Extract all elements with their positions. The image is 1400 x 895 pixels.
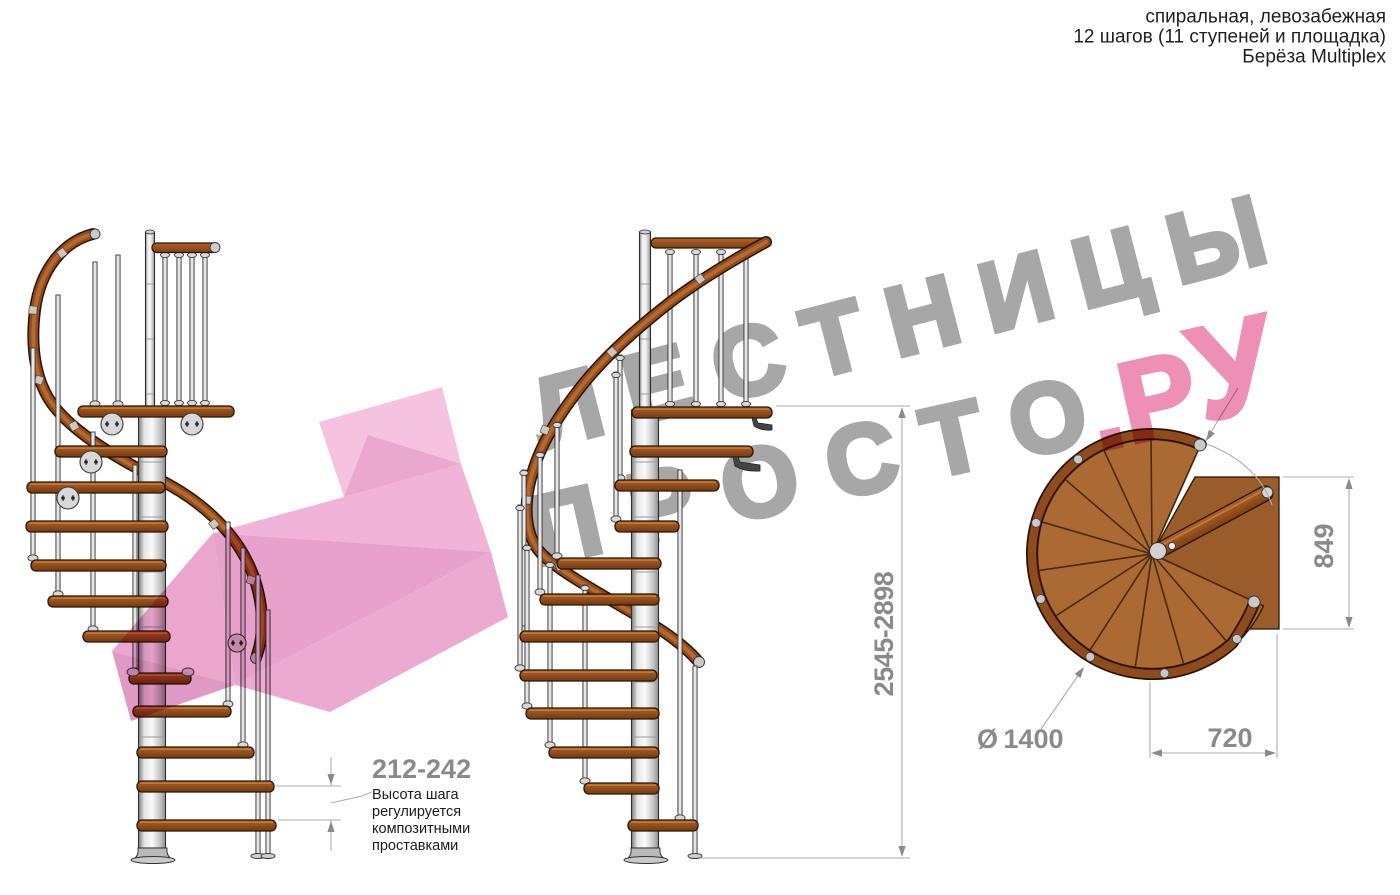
svg-text:720: 720	[1207, 723, 1252, 753]
svg-text:Высота шага: Высота шага	[372, 787, 459, 803]
svg-text:Берёза Multiplex: Берёза Multiplex	[1242, 47, 1386, 68]
svg-text:проставками: проставками	[372, 838, 458, 854]
svg-text:849: 849	[1309, 523, 1339, 568]
svg-text:регулируется: регулируется	[372, 804, 461, 820]
svg-text:композитными: композитными	[372, 821, 470, 837]
svg-text:212-242: 212-242	[372, 754, 471, 784]
svg-text:12 шагов (11 ступеней и площад: 12 шагов (11 ступеней и площадка)	[1073, 27, 1386, 48]
svg-text:Ø 1400: Ø 1400	[977, 724, 1063, 754]
svg-text:2545-2898: 2545-2898	[869, 571, 899, 696]
svg-text:спиральная, левозабежная: спиральная, левозабежная	[1145, 7, 1386, 28]
